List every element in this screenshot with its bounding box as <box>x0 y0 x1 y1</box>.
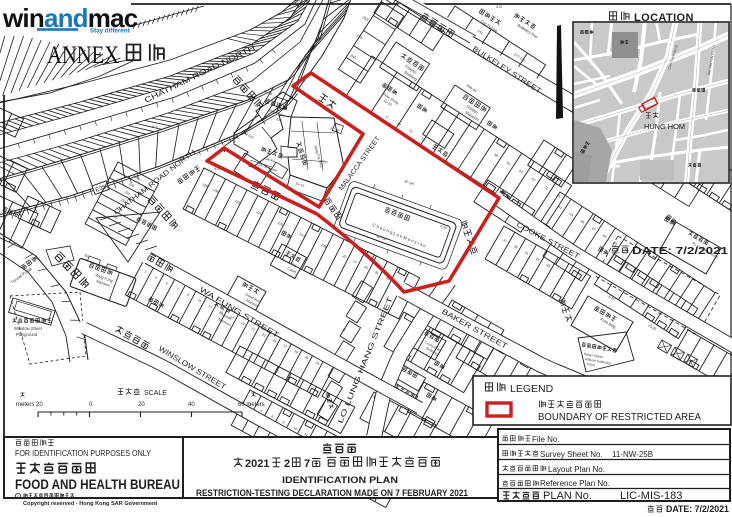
svg-text:RESTRICTION-TESTING DECLARATIO: RESTRICTION-TESTING DECLARATION MADE ON … <box>196 488 468 498</box>
svg-text:Copyright reserved - Hong Kong: Copyright reserved - Hong Kong SAR Gover… <box>23 501 157 507</box>
svg-text:Stay different: Stay different <box>90 28 130 35</box>
svg-text:20: 20 <box>138 402 145 408</box>
svg-text:HUNG HOM: HUNG HOM <box>644 124 685 131</box>
svg-text:2021: 2021 <box>245 458 269 470</box>
svg-text:FOOD AND HEALTH BUREAU: FOOD AND HEALTH BUREAU <box>15 477 180 492</box>
svg-text:11-NW-25B: 11-NW-25B <box>612 450 653 459</box>
svg-text:Winslow Street: Winslow Street <box>14 326 43 331</box>
svg-text:DATE: 7/2/2021: DATE: 7/2/2021 <box>666 504 729 514</box>
svg-text:4.8: 4.8 <box>304 53 310 58</box>
svg-text:LEGEND: LEGEND <box>510 383 554 395</box>
svg-text:DATE: 7/2/2021: DATE: 7/2/2021 <box>632 246 729 257</box>
svg-text:Playground: Playground <box>16 332 38 337</box>
svg-text:IDENTIFICATION PLAN: IDENTIFICATION PLAN <box>282 475 398 486</box>
svg-text:BOUNDARY OF RESTRICTED AREA: BOUNDARY OF RESTRICTED AREA <box>538 412 701 423</box>
svg-text:LIC-MIS-183: LIC-MIS-183 <box>620 490 682 502</box>
svg-text:File No.: File No. <box>532 435 560 444</box>
svg-text:7: 7 <box>304 458 310 470</box>
svg-text:FOR IDENTIFICATION PURPOSES ON: FOR IDENTIFICATION PURPOSES ONLY <box>15 449 152 458</box>
svg-text:LOCATION: LOCATION <box>634 12 694 24</box>
svg-text:Layout Plan No.: Layout Plan No. <box>548 465 605 474</box>
svg-text:Survey Sheet No.: Survey Sheet No. <box>540 450 603 459</box>
svg-text:SCALE: SCALE <box>144 390 167 397</box>
svg-text:Reference Plan No.: Reference Plan No. <box>540 479 610 488</box>
svg-text:PLAN No.: PLAN No. <box>543 490 592 502</box>
svg-text:C: C <box>17 494 20 499</box>
svg-text:8.2: 8.2 <box>152 124 158 129</box>
svg-text:meters 20: meters 20 <box>16 402 43 408</box>
svg-text:ANNEX: ANNEX <box>47 42 119 69</box>
svg-text:60 meters: 60 meters <box>238 402 265 408</box>
svg-text:2: 2 <box>284 458 290 470</box>
svg-text:40: 40 <box>188 402 195 408</box>
